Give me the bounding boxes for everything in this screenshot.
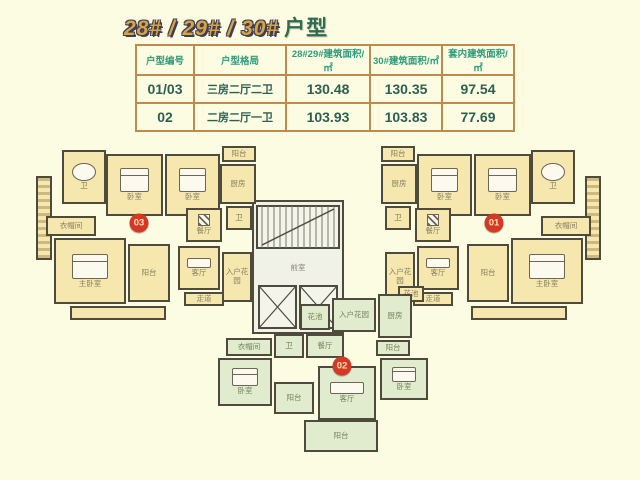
room-label: 衣帽间	[555, 222, 578, 231]
room: 阳台	[274, 382, 314, 414]
room-label: 厨房	[392, 180, 407, 189]
room-label: 餐厅	[426, 227, 441, 236]
room: 卫	[531, 150, 575, 204]
table-cell: 二房二厅一卫	[194, 103, 286, 131]
bed-icon	[529, 254, 565, 279]
room: 卧室	[106, 154, 163, 216]
room-label: 阳台	[481, 269, 496, 278]
room: 卫	[62, 150, 106, 204]
room-label: 卧室	[495, 193, 510, 202]
table-icon	[198, 214, 211, 226]
table-header-cell: 户型编号	[136, 45, 194, 75]
room-label: 走道	[197, 295, 212, 304]
sofa-icon	[330, 382, 363, 394]
table-cell: 01/03	[136, 75, 194, 103]
page-title: 28# / 29# / 30#户型	[124, 12, 328, 42]
room: 厨房	[381, 164, 417, 204]
room-label: 主卧室	[79, 280, 102, 289]
floorplan-sheet: 28# / 29# / 30#户型 户型编号户型格局28#29#建筑面积/㎡30…	[0, 0, 640, 480]
room-label: 卧室	[127, 193, 142, 202]
room: 卧室	[218, 358, 272, 406]
room-label: 卧室	[437, 193, 452, 202]
room: 卧室	[380, 358, 428, 400]
tub-icon	[72, 163, 96, 181]
room: 卫	[226, 206, 252, 230]
table-row: 01/03三房二厅二卫130.48130.3597.54	[136, 75, 514, 103]
table-body: 01/03三房二厅二卫130.48130.3597.5402二房二厅一卫103.…	[136, 75, 514, 131]
room	[471, 306, 567, 320]
table-icon	[427, 214, 440, 226]
table-cell: 103.83	[370, 103, 442, 131]
table-header-cell: 套内建筑面积/㎡	[442, 45, 514, 75]
room-label: 衣帽间	[238, 343, 261, 352]
room: 阳台	[304, 420, 378, 452]
room: 花池	[300, 304, 330, 330]
room-label: 阳台	[287, 394, 302, 403]
room-label: 厨房	[231, 180, 246, 189]
room: 餐厅	[306, 334, 344, 358]
room-label: 走道	[426, 295, 441, 304]
table-cell: 三房二厅二卫	[194, 75, 286, 103]
bed-icon	[120, 168, 148, 192]
table-row: 02二房二厅一卫103.93103.8377.69	[136, 103, 514, 131]
room: 入户花园	[222, 252, 252, 302]
sofa-icon	[426, 258, 449, 268]
bed-icon	[72, 254, 108, 279]
room-label: 阳台	[142, 269, 157, 278]
table-cell: 77.69	[442, 103, 514, 131]
title-suffix: 户型	[284, 17, 328, 40]
room-label: 卫	[549, 182, 557, 191]
room-label: 阳台	[334, 432, 349, 441]
room: 客厅	[318, 366, 376, 420]
room-label: 卧室	[238, 387, 253, 396]
room: 主卧室	[54, 238, 126, 304]
unit-info-table: 户型编号户型格局28#29#建筑面积/㎡30#建筑面积/㎡套内建筑面积/㎡ 01…	[135, 44, 515, 132]
room: 客厅	[417, 246, 459, 290]
room: 阳台	[381, 146, 415, 162]
unit-badge: 03	[130, 214, 149, 233]
bed-icon	[179, 168, 206, 192]
bed-icon	[392, 367, 415, 382]
table-cell: 97.54	[442, 75, 514, 103]
room-label: 阳台	[386, 344, 401, 353]
room: 卧室	[165, 154, 220, 216]
room: 餐厅	[186, 208, 222, 242]
unit-badge: 02	[333, 357, 352, 376]
room: 阳台	[467, 244, 509, 302]
anteroom-label: 前室	[291, 262, 306, 273]
room-label: 阳台	[232, 150, 247, 159]
room-label: 衣帽间	[60, 222, 83, 231]
room-label: 卧室	[185, 193, 200, 202]
room-label: 卫	[285, 342, 293, 351]
room: 阳台	[376, 340, 410, 356]
room: 入户花园	[332, 298, 376, 332]
table-cell: 103.93	[286, 103, 370, 131]
room-label: 卧室	[397, 383, 412, 392]
table-header-cell: 28#29#建筑面积/㎡	[286, 45, 370, 75]
table-cell: 02	[136, 103, 194, 131]
room-label: 客厅	[192, 269, 207, 278]
room-label: 阳台	[391, 150, 406, 159]
room-label: 卫	[235, 214, 243, 223]
bed-icon	[488, 168, 516, 192]
room: 衣帽间	[46, 216, 96, 236]
bed-icon	[431, 168, 458, 192]
table-head-row: 户型编号户型格局28#29#建筑面积/㎡30#建筑面积/㎡套内建筑面积/㎡	[136, 45, 514, 75]
title-building-numbers: 28# / 29# / 30#	[124, 17, 279, 40]
room: 卧室	[417, 154, 472, 216]
bed-icon	[232, 368, 258, 386]
room: 卫	[385, 206, 411, 230]
room-label: 花池	[308, 313, 323, 322]
table-header-cell: 户型格局	[194, 45, 286, 75]
stairs-icon	[256, 205, 340, 249]
room: 厨房	[220, 164, 256, 204]
room: 厨房	[378, 294, 412, 338]
room-label: 餐厅	[197, 227, 212, 236]
room: 主卧室	[511, 238, 583, 304]
room-label: 客厅	[340, 395, 355, 404]
room: 阳台	[222, 146, 256, 162]
room-label: 卫	[394, 214, 402, 223]
room-label: 入户花园	[225, 268, 249, 285]
room	[70, 306, 166, 320]
room: 衣帽间	[541, 216, 591, 236]
room: 衣帽间	[226, 338, 272, 356]
stair-elevator-core: 前室	[252, 200, 344, 334]
room: 客厅	[178, 246, 220, 290]
unit-badge: 01	[485, 214, 504, 233]
tub-icon	[541, 163, 565, 181]
room-label: 主卧室	[536, 280, 559, 289]
sofa-icon	[187, 258, 210, 268]
room: 卧室	[474, 154, 531, 216]
table-cell: 130.35	[370, 75, 442, 103]
room-label: 厨房	[388, 312, 403, 321]
room-label: 客厅	[431, 269, 446, 278]
room: 走道	[184, 292, 224, 306]
room: 卫	[274, 334, 304, 358]
room: 餐厅	[415, 208, 451, 242]
room-label: 餐厅	[318, 342, 333, 351]
table-header-cell: 30#建筑面积/㎡	[370, 45, 442, 75]
table-cell: 130.48	[286, 75, 370, 103]
room-label: 卫	[80, 182, 88, 191]
room-label: 入户花园	[339, 311, 369, 320]
room-label: 入户花园	[388, 268, 412, 285]
room: 阳台	[128, 244, 170, 302]
